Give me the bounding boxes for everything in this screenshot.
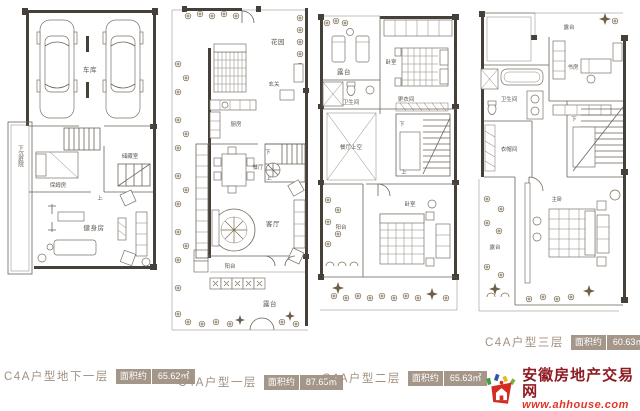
site-logo-text: 安徽房地产交易网 www.ahhouse.com	[522, 368, 640, 411]
room-label-garage: 车库	[83, 65, 97, 74]
room-label-living: 客厅	[266, 219, 280, 228]
dining-table-icon	[214, 147, 254, 193]
desk-icon	[581, 43, 622, 83]
room-label-foyer: 玄关	[268, 80, 280, 88]
room-label-storage: 储藏室	[122, 152, 139, 160]
kitchen-counter-icon	[210, 100, 256, 138]
bathroom-fixtures	[481, 69, 543, 119]
room-label-dressing: 更衣间	[398, 95, 415, 103]
plan-title-basement: C4A户型地下一层 面积约 65.62㎡	[4, 368, 195, 384]
bed-icon	[549, 201, 609, 266]
room-label-gym: 健身房	[84, 223, 105, 232]
room-label-balcony-f2: 阳台	[335, 223, 347, 231]
stairs-icon	[573, 107, 623, 171]
area-prefix: 面积约	[571, 335, 607, 350]
stairs-down-label: 下	[571, 116, 577, 123]
room-label-kitchen: 厨房	[230, 120, 242, 128]
plan-name-basement: C4A户型地下一层	[4, 368, 109, 384]
flower-pots	[325, 197, 358, 266]
room-label-terrace: 露台	[263, 299, 277, 308]
plan-title-floor2: C4A户型二层 面积约 65.63㎡	[322, 370, 487, 386]
site-logo-icon	[484, 373, 517, 407]
stairs-down-label: 下	[399, 121, 405, 128]
stairs-down-label: 下	[265, 149, 271, 156]
plan-name-floor2: C4A户型二层	[322, 370, 401, 386]
room-label-dining-void: 餐厅上空	[340, 143, 363, 151]
room-label-walkin-closet: 衣帽间	[501, 145, 518, 153]
floorplan-floor2-svg: 露台 卧室 卫生间 更衣间 餐厅上空 下 上 阳台	[318, 14, 463, 326]
closet-hatch-icon	[485, 125, 495, 171]
lounge-chairs-icon	[332, 29, 369, 63]
chair-icon	[533, 217, 541, 225]
room-label-terrace-upper: 露台	[337, 67, 351, 76]
room-label-study: 书房	[567, 63, 579, 71]
room-label-terrace-top: 露台	[563, 23, 575, 31]
wardrobe-icon	[384, 20, 452, 36]
closet-hatch-icon	[396, 103, 448, 111]
area-prefix: 面积约	[116, 369, 152, 384]
planter-column	[196, 144, 208, 258]
tv-stand-icon	[212, 210, 219, 246]
room-label-master-bedroom: 主卧	[551, 195, 563, 203]
room-label-bathroom-f3: 卫生间	[501, 95, 518, 103]
floorplan-basement: 下沉庭院 车库 保姆房 储藏室 上	[6, 6, 166, 292]
room-label-garden: 花园	[271, 37, 285, 46]
site-url: www.ahhouse.com	[522, 400, 640, 411]
stairs-icon	[118, 164, 150, 186]
area-value: 65.63㎡	[444, 371, 488, 386]
area-badge-floor2: 面积约 65.63㎡	[408, 371, 488, 386]
bed-icon	[214, 44, 246, 92]
floorplan-floor1-svg: 花园 玄关 厨房 餐厅 下 上	[170, 4, 313, 336]
stairs-icon	[64, 128, 100, 150]
room-label-nanny-room: 保姆房	[50, 181, 67, 189]
closet-row	[553, 105, 611, 115]
bookshelf-icon	[553, 41, 565, 79]
site-name: 安徽房地产交易网	[522, 368, 640, 400]
floorplan-floor1: 花园 玄关 厨房 餐厅 下 上	[170, 4, 313, 336]
chair-icon	[533, 233, 541, 241]
car-icon	[37, 20, 77, 118]
bed-icon	[380, 200, 450, 266]
floorplan-floor3: 露台 书房 卫生间 衣帽间 下	[477, 9, 635, 319]
room-label-bedroom-lower: 卧室	[404, 200, 416, 208]
floorplan-floor3-svg: 露台 书房 卫生间 衣帽间 下	[477, 9, 635, 319]
room-label-dining: 餐厅	[252, 163, 264, 171]
floorplan-basement-svg: 下沉庭院 车库 保姆房 储藏室 上	[6, 6, 166, 292]
room-label-sunken-courtyard: 下沉庭院	[17, 145, 24, 169]
room-label-bedroom-upper: 卧室	[385, 58, 397, 66]
bed-icon	[395, 48, 448, 86]
stairs-up-label: 上	[401, 168, 407, 176]
area-badge-floor3: 面积约 60.63㎡	[571, 335, 640, 350]
sunken-courtyard: 下沉庭院	[8, 122, 32, 274]
bed-icon	[36, 152, 78, 178]
plan-name-floor3: C4A户型三层	[485, 334, 564, 350]
stairs-up-label: 上	[266, 174, 272, 182]
area-prefix: 面积约	[408, 371, 444, 386]
floorplan-floor2: 露台 卧室 卫生间 更衣间 餐厅上空 下 上 阳台	[318, 14, 463, 326]
plan-title-floor1: C4A户型一层 面积约 87.65㎡	[178, 374, 343, 390]
tv-wall-icon	[525, 183, 530, 283]
stairs-up-label: 上	[97, 194, 103, 202]
room-label-bathroom-f2: 卫生间	[343, 98, 360, 106]
potted-plant-icon	[610, 190, 620, 200]
plan-name-floor1: C4A户型一层	[178, 374, 257, 390]
room-label-balcony: 阳台	[224, 262, 236, 270]
site-logo: 安徽房地产交易网 www.ahhouse.com	[484, 368, 640, 411]
plan-title-floor3: C4A户型三层 面积约 60.63㎡	[485, 334, 640, 350]
room-label-terrace-left: 露台	[489, 243, 501, 251]
area-prefix: 面积约	[264, 375, 300, 390]
area-value: 60.63㎡	[607, 335, 640, 350]
car-icon	[103, 20, 143, 118]
sofa-icon	[288, 180, 305, 264]
void-room	[487, 17, 531, 61]
